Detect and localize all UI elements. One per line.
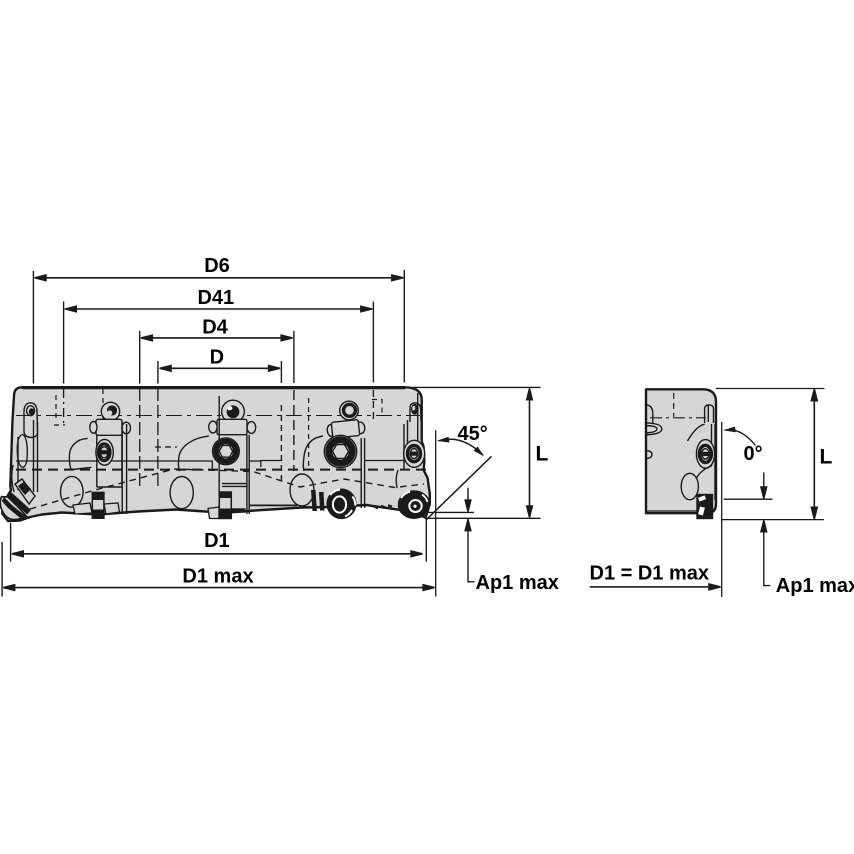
svg-text:Ap1 max: Ap1 max: [776, 575, 854, 597]
svg-text:Ap1 max: Ap1 max: [476, 572, 559, 594]
svg-text:D1: D1: [204, 530, 230, 552]
svg-text:D1 max: D1 max: [182, 565, 253, 587]
svg-text:D1 = D1 max: D1 = D1 max: [590, 563, 710, 585]
svg-text:L: L: [820, 446, 833, 469]
svg-text:D: D: [210, 346, 224, 368]
svg-text:D6: D6: [204, 255, 230, 277]
svg-text:D4: D4: [202, 316, 228, 338]
svg-text:45°: 45°: [458, 423, 488, 445]
svg-text:D41: D41: [197, 287, 234, 309]
svg-text:L: L: [536, 443, 549, 466]
svg-text:0°: 0°: [744, 443, 763, 465]
